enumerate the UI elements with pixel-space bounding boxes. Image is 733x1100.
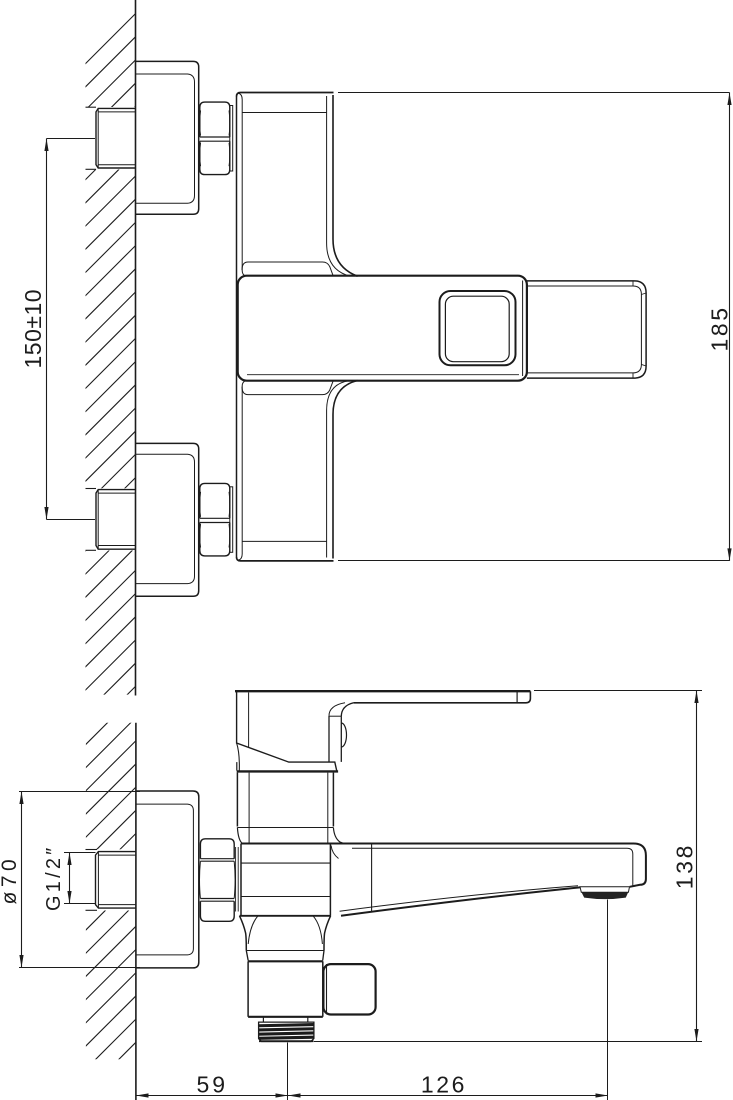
svg-text:G1/2″: G1/2″ bbox=[43, 845, 65, 911]
svg-text:59: 59 bbox=[197, 1072, 229, 1098]
svg-text:185: 185 bbox=[707, 305, 733, 351]
svg-text:150±10: 150±10 bbox=[20, 289, 46, 369]
svg-text:126: 126 bbox=[421, 1072, 467, 1098]
svg-text:ø70: ø70 bbox=[0, 855, 21, 905]
svg-text:138: 138 bbox=[672, 843, 698, 889]
